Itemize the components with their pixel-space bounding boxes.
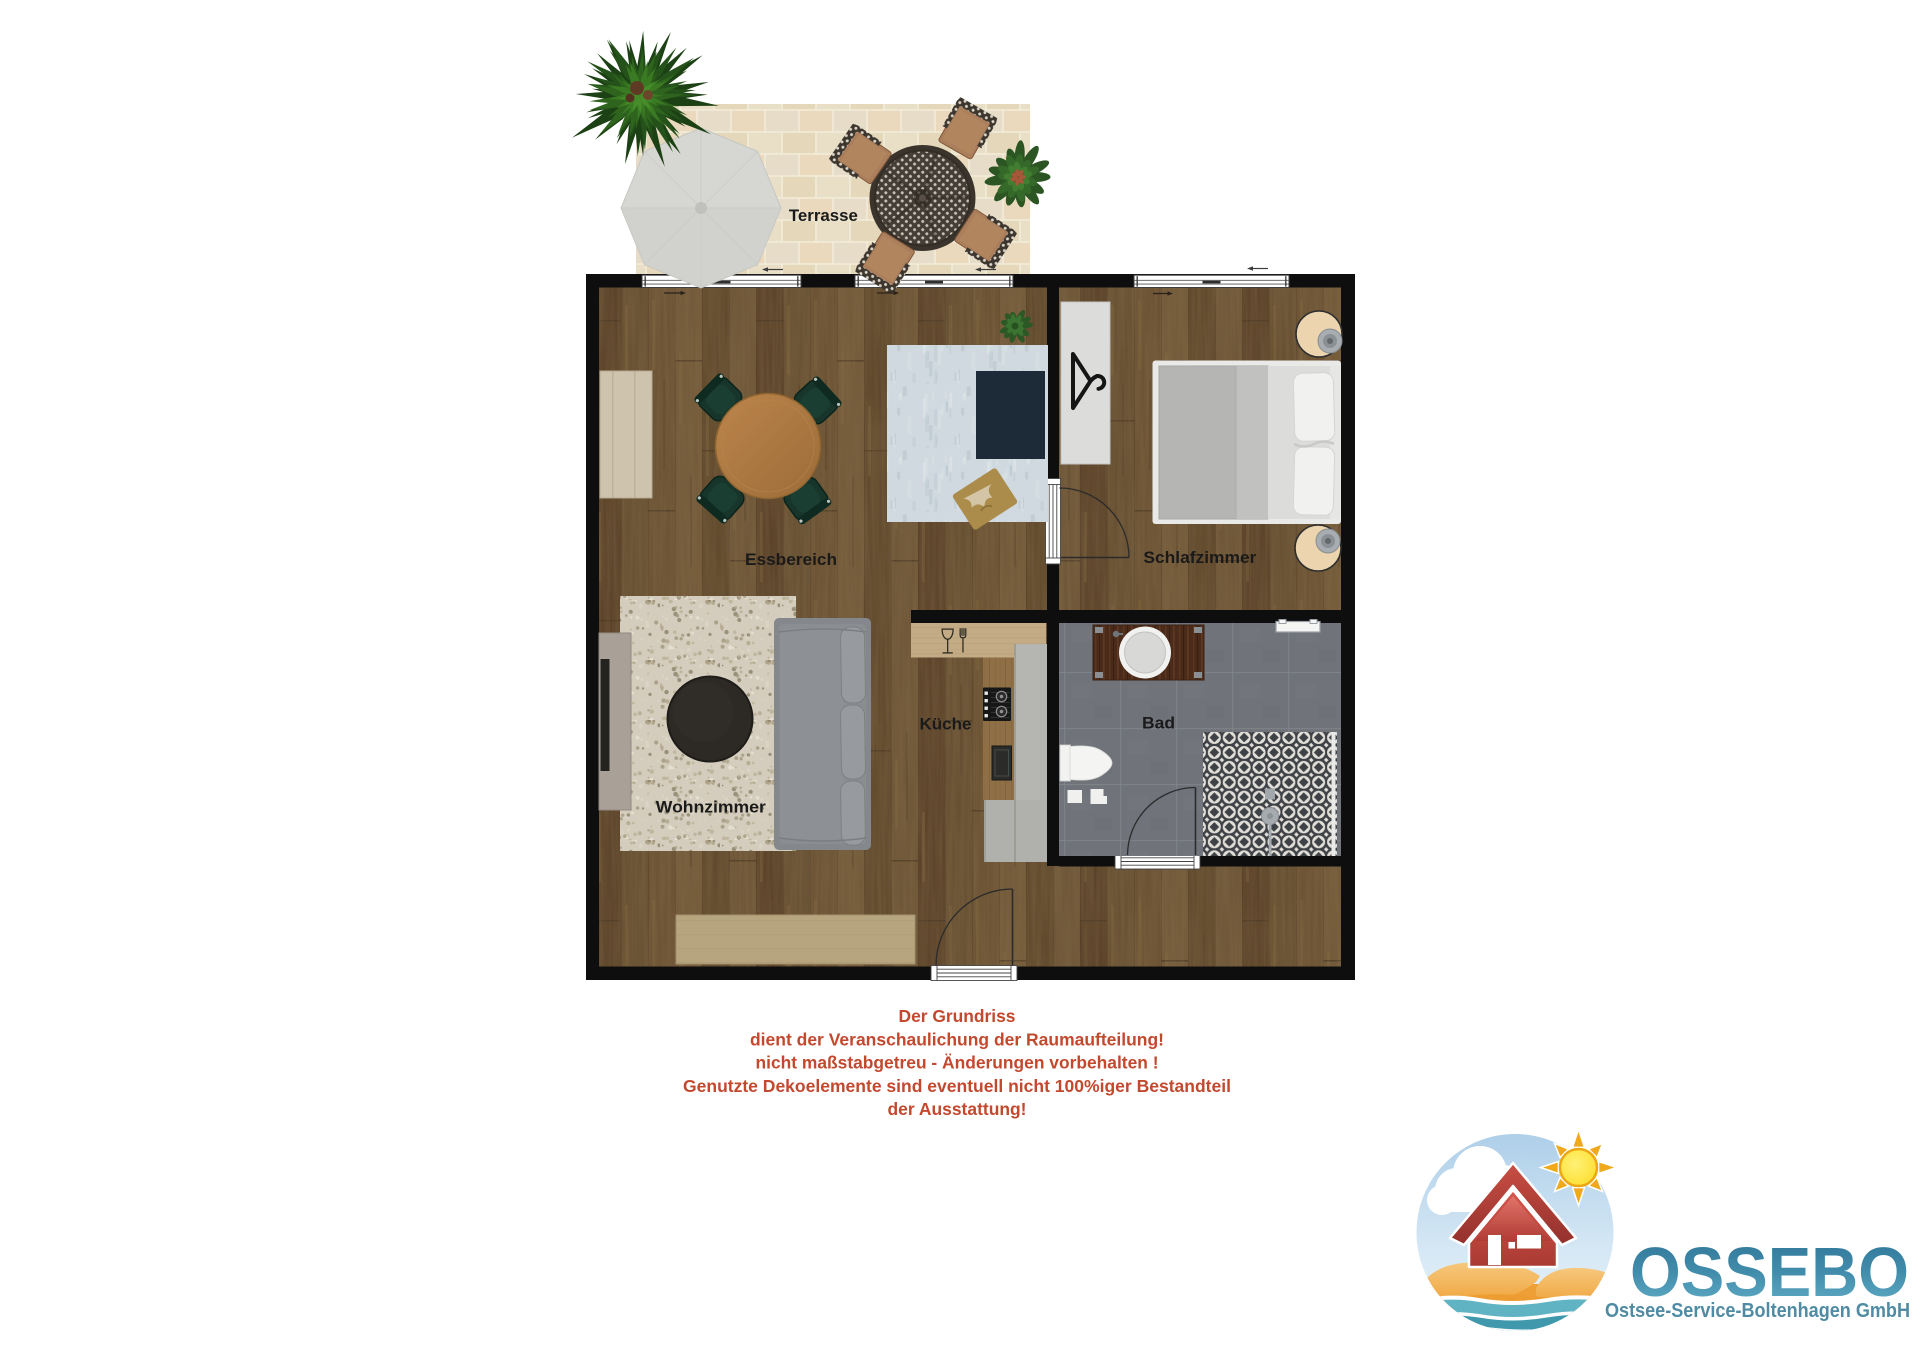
svg-text:dient der Veranschaulichung de: dient der Veranschaulichung der Raumauft… [750, 1029, 1164, 1049]
svg-text:Terrasse: Terrasse [789, 206, 858, 225]
svg-text:Essbereich: Essbereich [745, 550, 837, 569]
svg-text:Schlafzimmer: Schlafzimmer [1143, 548, 1256, 567]
svg-text:Ostsee-Service-Boltenhagen Gmb: Ostsee-Service-Boltenhagen GmbH [1605, 1300, 1910, 1322]
svg-text:Genutzte Dekoelemente sind eve: Genutzte Dekoelemente sind eventuell nic… [683, 1076, 1231, 1096]
svg-text:der Ausstattung!: der Ausstattung! [888, 1099, 1027, 1119]
svg-text:Der Grundriss: Der Grundriss [899, 1006, 1016, 1026]
svg-text:Wohnzimmer: Wohnzimmer [656, 798, 766, 817]
svg-text:nicht maßstabgetreu - Änderung: nicht maßstabgetreu - Änderungen vorbeha… [756, 1053, 1159, 1073]
svg-text:Küche: Küche [920, 715, 972, 734]
svg-text:Bad: Bad [1142, 713, 1175, 732]
